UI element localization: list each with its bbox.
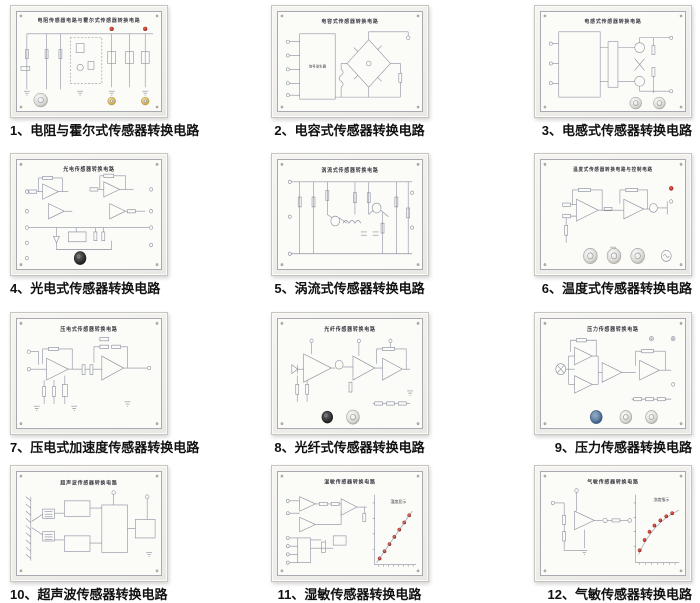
board-inductive: 电感式传感器转换电路 [534, 5, 692, 118]
adjust-knob [646, 411, 658, 424]
catalog-item-9: 压力传感器转换电路 [466, 303, 700, 462]
board-title: 压力传感器转换电路 [587, 325, 638, 333]
schematic-pressure: 压力传感器转换电路 [541, 319, 685, 428]
board-title: 电阻传感器电路与霍尔式传感器转换电路 [38, 17, 141, 24]
adjust-knob [583, 248, 597, 263]
schematic-gas: 气敏传感器转换电路 浓度指示 [541, 472, 685, 575]
board-gas: 气敏传感器转换电路 浓度指示 [534, 465, 692, 582]
board-face: 电感式传感器转换电路 [540, 11, 686, 112]
catalog-item-7: 压电式传感器转换电路 7、压电式加速度传感 [0, 303, 233, 462]
adjust-knob-dark [74, 252, 86, 265]
schematic-photoelectric: 光电传感器转换电路 [17, 160, 161, 269]
board-face: 光电传感器转换电路 [16, 159, 162, 270]
schematic-humidity: 湿敏传感器转换电路 湿度显示 [278, 472, 422, 575]
board-face: 气敏传感器转换电路 浓度指示 [540, 471, 686, 576]
caption-8: 8、光纤式传感器转换电路 [274, 440, 424, 456]
caption-5: 5、涡流式传感器转换电路 [274, 281, 424, 297]
schematic-temperature: 温度式传感器转换电路与控制电路 [541, 160, 685, 269]
caption-9: 9、压力传感器转换电路 [555, 440, 692, 456]
caption-4: 4、光电式传感器转换电路 [10, 281, 160, 297]
signal-generator-label: 信号发生器 [308, 63, 326, 68]
adjust-knob-blue [590, 411, 602, 424]
board-resistance-hall: 电阻传感器电路与霍尔式传感器转换电路 [10, 5, 168, 118]
board-title: 光电传感器转换电路 [62, 165, 114, 173]
caption-1: 1、电阻与霍尔式传感器转换电路 [10, 123, 199, 139]
led-dot [671, 511, 674, 515]
board-title: 光纤传感器转换电路 [323, 325, 375, 333]
board-capacitive: 电容式传感器转换电路 信号发生器 [271, 5, 429, 118]
caption-7: 7、压电式加速度传感器转换电路 [10, 440, 199, 456]
board-photoelectric: 光电传感器转换电路 [10, 153, 168, 276]
catalog-item-12: 气敏传感器转换电路 浓度指示 [466, 462, 700, 603]
board-face: 温度式传感器转换电路与控制电路 [540, 159, 686, 270]
catalog-item-10: 超声波传感器转换电路 10、超声波传感器转换电路 [0, 462, 233, 603]
board-face: 涡流式传感器转换电路 [277, 159, 423, 270]
caption-2: 2、电容式传感器转换电路 [274, 123, 424, 139]
graph-axes [636, 495, 679, 563]
led-dot [643, 538, 646, 542]
catalog-item-2: 电容式传感器转换电路 信号发生器 2、电容式传感器转换电路 [233, 0, 466, 145]
adjust-knob [631, 248, 645, 263]
schematic-piezoelectric: 压电式传感器转换电路 [17, 319, 161, 428]
schematic-resistance-hall: 电阻传感器电路与霍尔式传感器转换电路 [17, 12, 161, 111]
caption-12: 12、气敏传感器转换电路 [548, 587, 692, 603]
catalog-page: 电阻传感器电路与霍尔式传感器转换电路 1、电阻与霍尔式传感器转换 [0, 0, 700, 603]
board-title: 湿敏传感器转换电路 [324, 478, 376, 485]
board-face: 压电式传感器转换电路 [16, 318, 162, 429]
board-title: 气敏传感器转换电路 [587, 478, 639, 485]
schematic-ultrasonic: 超声波传感器转换电路 [17, 472, 161, 575]
adjust-knob [653, 97, 665, 109]
led-indicator [669, 186, 673, 190]
board-fiber-optic: 光纤传感器转换电路 [271, 312, 429, 435]
graph-axes [374, 495, 415, 565]
catalog-item-5: 涡流式传感器转换电路 5、涡流式传感器转换电路 [233, 145, 466, 303]
led-indicator [110, 27, 114, 31]
catalog-item-8: 光纤传感器转换电路 [233, 303, 466, 462]
board-title: 温度式传感器转换电路与控制电路 [573, 166, 653, 173]
board-face: 压力传感器转换电路 [540, 318, 686, 429]
catalog-item-6: 温度式传感器转换电路与控制电路 [466, 145, 700, 303]
catalog-item-1: 电阻传感器电路与霍尔式传感器转换电路 1、电阻与霍尔式传感器转换 [0, 0, 233, 145]
graph-label: 浓度指示 [653, 496, 669, 502]
board-face: 湿敏传感器转换电路 湿度显示 [277, 471, 423, 576]
board-face: 电阻传感器电路与霍尔式传感器转换电路 [16, 11, 162, 112]
board-title: 涡流式传感器转换电路 [321, 166, 378, 174]
board-face: 电容式传感器转换电路 信号发生器 [277, 11, 423, 112]
schematic-eddy-current: 涡流式传感器转换电路 [278, 160, 422, 269]
catalog-item-11: 湿敏传感器转换电路 湿度显示 [233, 462, 466, 603]
board-title: 电容式传感器转换电路 [321, 18, 378, 25]
led-dot [665, 515, 668, 519]
board-piezoelectric: 压电式传感器转换电路 [10, 312, 168, 435]
led-dot [659, 519, 662, 523]
adjust-knob [34, 93, 48, 107]
led-dot [653, 524, 656, 528]
board-title: 超声波传感器转换电路 [59, 479, 117, 486]
caption-6: 6、温度式传感器转换电路 [542, 281, 692, 297]
catalog-item-3: 电感式传感器转换电路 3、电感式传感器转换电路 [466, 0, 700, 145]
board-face: 超声波传感器转换电路 [16, 471, 162, 576]
board-humidity: 湿敏传感器转换电路 湿度显示 [271, 465, 429, 582]
schematic-capacitive: 电容式传感器转换电路 信号发生器 [278, 12, 422, 111]
adjust-knob [630, 97, 642, 109]
led-indicator [143, 27, 147, 31]
schematic-inductive: 电感式传感器转换电路 [541, 12, 685, 111]
graph-label: 湿度显示 [390, 498, 406, 504]
catalog-item-4: 光电传感器转换电路 4、光电式传感器转换电路 [0, 145, 233, 303]
caption-10: 10、超声波传感器转换电路 [10, 587, 167, 603]
board-face: 光纤传感器转换电路 [277, 318, 423, 429]
schematic-fiber-optic: 光纤传感器转换电路 [278, 319, 422, 428]
board-title: 压电式传感器转换电路 [60, 325, 117, 333]
led-dot [638, 549, 641, 553]
board-ultrasonic: 超声波传感器转换电路 [10, 465, 168, 582]
adjust-knob [346, 410, 359, 424]
led-dot [648, 530, 651, 534]
board-eddy-current: 涡流式传感器转换电路 [271, 153, 429, 276]
board-pressure: 压力传感器转换电路 [534, 312, 692, 435]
board-title: 电感式传感器转换电路 [584, 18, 641, 25]
caption-3: 3、电感式传感器转换电路 [542, 123, 692, 139]
adjust-knob-black [321, 411, 332, 423]
adjust-knob [607, 248, 621, 263]
board-temperature: 温度式传感器转换电路与控制电路 [534, 153, 692, 276]
adjust-knob [620, 411, 632, 424]
caption-11: 11、湿敏传感器转换电路 [278, 587, 422, 603]
